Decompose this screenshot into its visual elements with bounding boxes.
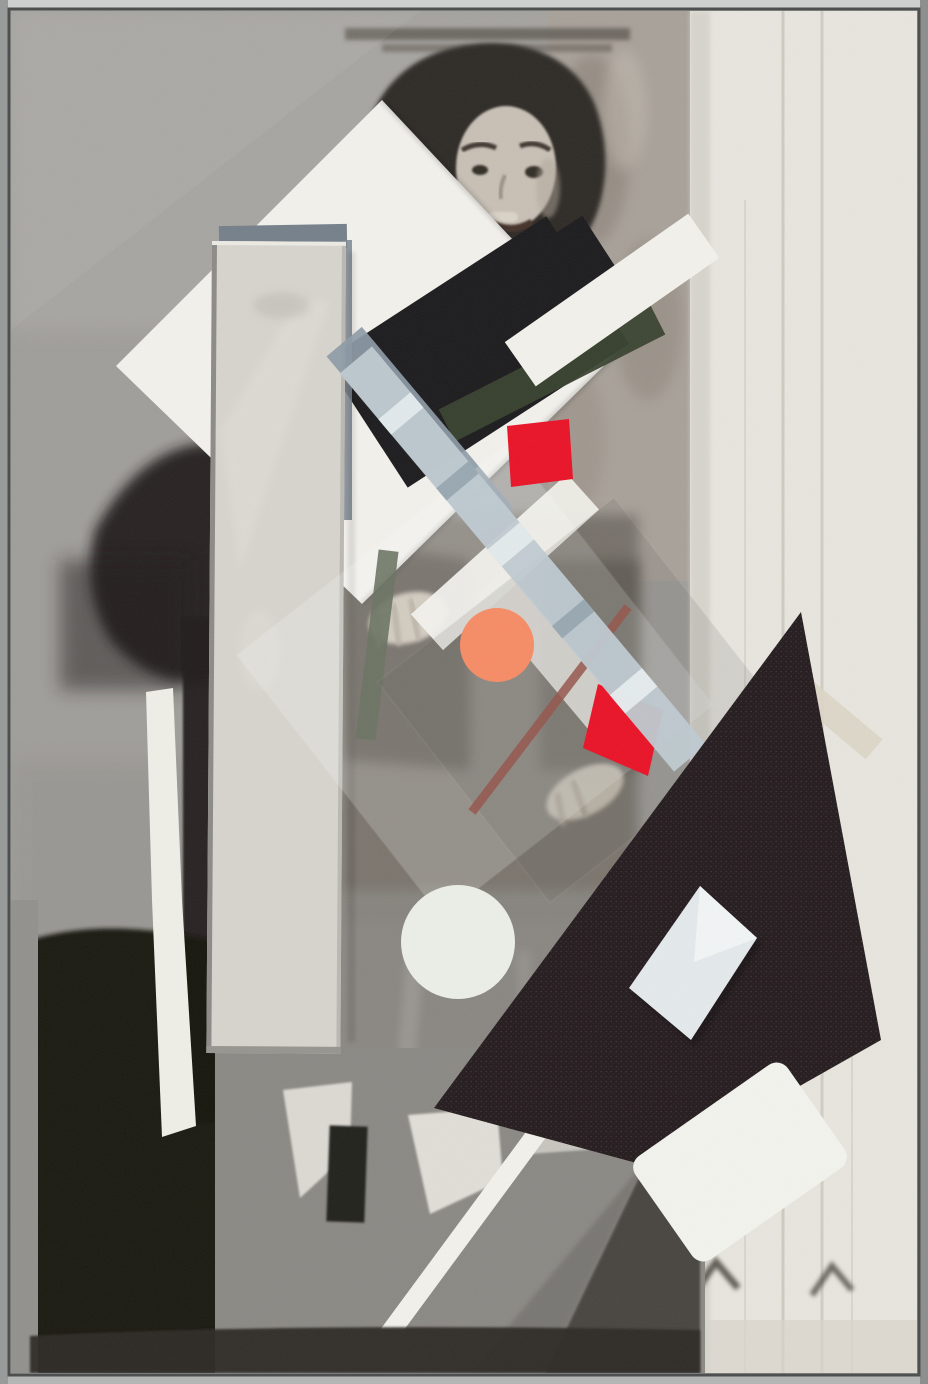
- artwork-canvas: [0, 0, 928, 1384]
- artwork-photo: [0, 0, 928, 1384]
- frame-right: [920, 0, 928, 1384]
- art-under-glass: [11, 11, 917, 1380]
- frame-top-highlight: [0, 0, 928, 8]
- frame-bottom: [0, 1376, 928, 1384]
- frame-left: [0, 0, 8, 1384]
